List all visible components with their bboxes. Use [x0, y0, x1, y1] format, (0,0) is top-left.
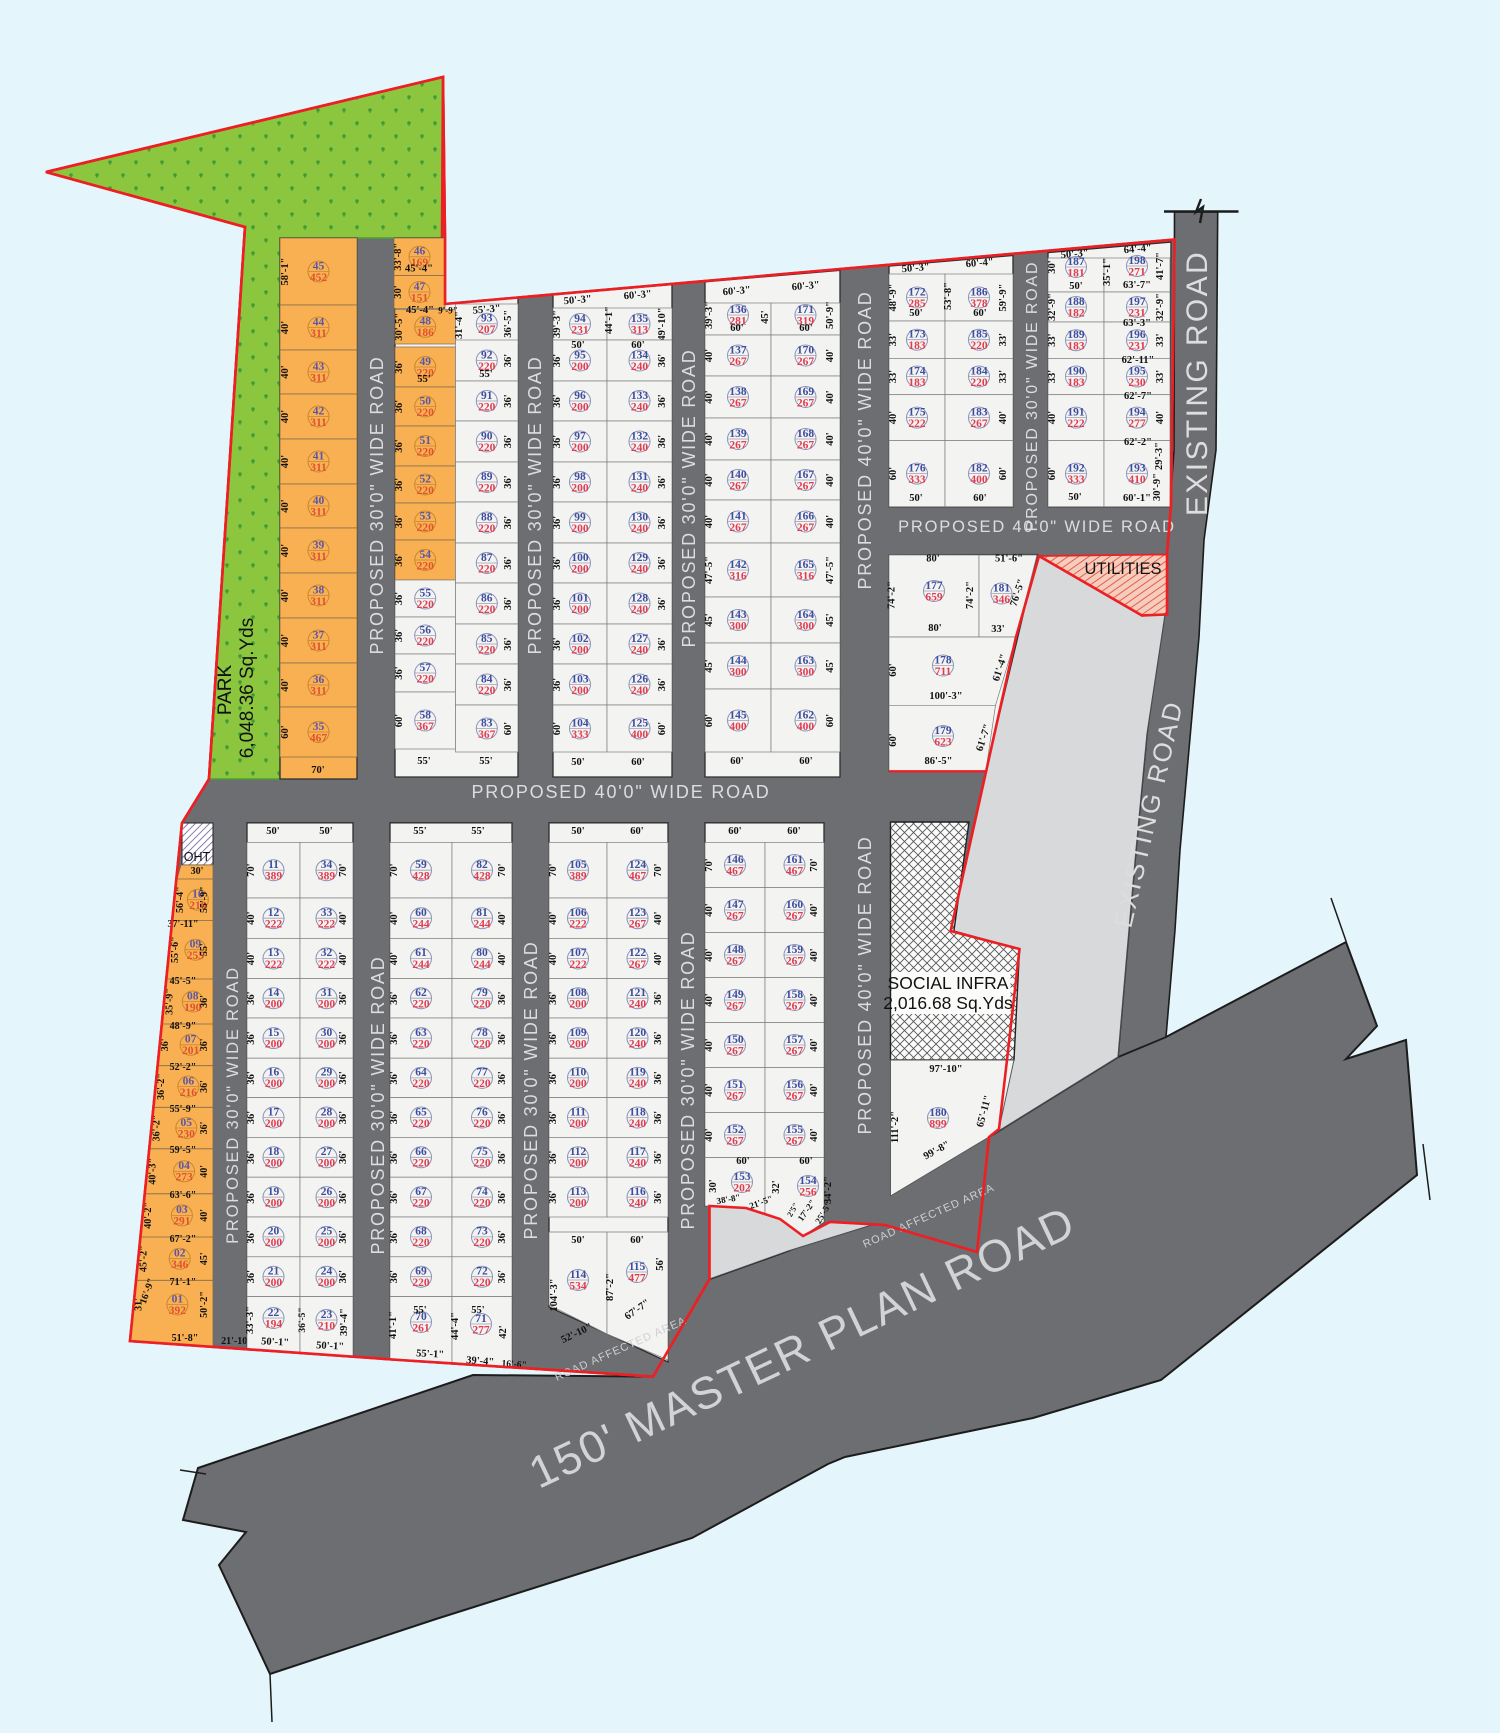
svg-text:220: 220	[478, 563, 496, 575]
svg-text:74'-2": 74'-2"	[965, 581, 976, 609]
svg-text:36': 36'	[497, 1270, 508, 1284]
svg-text:40': 40'	[280, 365, 291, 379]
svg-text:220: 220	[473, 1158, 491, 1170]
svg-text:200: 200	[265, 1038, 283, 1050]
svg-text:70': 70'	[311, 765, 325, 776]
svg-text:711: 711	[935, 666, 952, 678]
svg-text:36': 36'	[389, 1111, 400, 1125]
svg-text:36': 36'	[389, 1071, 400, 1085]
svg-text:240: 240	[631, 604, 649, 616]
svg-text:42: 42	[313, 405, 325, 417]
svg-text:96: 96	[574, 390, 586, 402]
svg-text:220: 220	[478, 442, 496, 454]
svg-text:200: 200	[265, 1237, 283, 1249]
svg-text:36': 36'	[657, 556, 668, 570]
svg-text:56'-4": 56'-4"	[175, 886, 186, 913]
svg-text:60': 60'	[1047, 467, 1058, 481]
svg-text:165: 165	[797, 559, 815, 571]
svg-text:200: 200	[569, 1197, 587, 1209]
svg-text:116: 116	[629, 1186, 646, 1198]
svg-text:36': 36'	[548, 991, 559, 1005]
svg-text:267: 267	[726, 1090, 744, 1102]
svg-text:60': 60'	[799, 1156, 813, 1167]
svg-text:244: 244	[473, 919, 491, 931]
svg-text:267: 267	[729, 439, 747, 451]
svg-text:58'-1": 58'-1"	[280, 258, 291, 286]
svg-text:467: 467	[726, 865, 744, 877]
svg-text:36': 36'	[394, 478, 405, 492]
svg-text:220: 220	[478, 644, 496, 656]
svg-text:36': 36'	[394, 439, 405, 453]
svg-text:32'-9": 32'-9"	[1047, 293, 1058, 321]
svg-text:91: 91	[481, 390, 493, 402]
svg-text:106: 106	[569, 907, 587, 919]
svg-text:267: 267	[629, 919, 647, 931]
svg-text:47'-5": 47'-5"	[825, 556, 836, 584]
svg-text:36': 36'	[338, 1190, 349, 1204]
svg-text:44'-1": 44'-1"	[604, 306, 615, 334]
svg-text:40': 40'	[497, 911, 508, 925]
svg-text:50': 50'	[909, 493, 923, 504]
svg-text:52: 52	[419, 473, 431, 485]
svg-text:47'-5": 47'-5"	[704, 556, 715, 584]
svg-text:07: 07	[185, 1034, 197, 1046]
svg-text:50'-1": 50'-1"	[261, 1336, 290, 1348]
svg-text:36': 36'	[389, 1151, 400, 1165]
svg-text:63'-6": 63'-6"	[170, 1190, 197, 1201]
svg-text:367: 367	[478, 729, 496, 741]
svg-text:PROPOSED 30'0" WIDE ROAD: PROPOSED 30'0" WIDE ROAD	[521, 940, 541, 1239]
svg-text:45'-5": 45'-5"	[170, 976, 197, 987]
svg-text:71'-1": 71'-1"	[170, 1277, 197, 1288]
svg-text:198: 198	[1128, 255, 1146, 267]
svg-text:428: 428	[412, 871, 430, 883]
svg-text:200: 200	[571, 482, 589, 494]
svg-text:400: 400	[631, 729, 649, 741]
svg-text:33': 33'	[1047, 370, 1058, 384]
svg-text:OHT: OHT	[184, 850, 211, 864]
svg-text:67: 67	[415, 1186, 427, 1198]
svg-text:95: 95	[574, 349, 586, 361]
svg-text:PROPOSED 30'0" WIDE ROAD: PROPOSED 30'0" WIDE ROAD	[368, 955, 388, 1254]
svg-text:220: 220	[417, 673, 435, 685]
svg-text:45'-4": 45'-4"	[405, 264, 433, 275]
svg-text:256: 256	[799, 1186, 817, 1198]
svg-text:220: 220	[478, 482, 496, 494]
svg-text:126: 126	[631, 673, 649, 685]
svg-text:40': 40'	[704, 1083, 715, 1097]
svg-text:36': 36'	[552, 516, 563, 530]
svg-text:24: 24	[321, 1266, 333, 1278]
svg-text:200: 200	[265, 999, 283, 1011]
svg-text:400: 400	[970, 474, 988, 486]
svg-text:118: 118	[629, 1106, 646, 1118]
svg-text:174: 174	[908, 365, 926, 377]
svg-text:70': 70'	[389, 863, 400, 877]
svg-text:104'-3": 104'-3"	[549, 1278, 560, 1311]
svg-text:240: 240	[631, 563, 649, 575]
svg-text:157: 157	[786, 1034, 804, 1046]
svg-text:36': 36'	[160, 1038, 171, 1051]
svg-text:64: 64	[415, 1067, 427, 1079]
svg-text:36': 36'	[389, 1031, 400, 1045]
svg-text:55': 55'	[479, 369, 493, 380]
svg-text:36'-5": 36'-5"	[503, 310, 514, 338]
svg-text:40': 40'	[825, 432, 836, 446]
svg-text:200: 200	[571, 685, 589, 697]
svg-text:PROPOSED 40'0" WIDE ROAD: PROPOSED 40'0" WIDE ROAD	[855, 290, 875, 589]
svg-text:316: 316	[797, 570, 815, 582]
svg-text:60': 60'	[552, 722, 563, 736]
svg-text:154: 154	[799, 1175, 817, 1187]
svg-text:200: 200	[571, 604, 589, 616]
svg-text:74: 74	[476, 1186, 488, 1198]
svg-text:267: 267	[729, 356, 747, 368]
svg-text:36': 36'	[394, 553, 405, 567]
svg-text:33'-3": 33'-3"	[245, 1306, 256, 1334]
svg-text:141: 141	[729, 510, 747, 522]
svg-text:60': 60'	[280, 725, 291, 739]
svg-text:200: 200	[318, 1158, 336, 1170]
svg-text:267: 267	[726, 910, 744, 922]
svg-text:33': 33'	[998, 333, 1009, 347]
svg-text:26: 26	[321, 1186, 333, 1198]
svg-text:194: 194	[265, 1318, 283, 1330]
svg-text:40': 40'	[998, 411, 1009, 425]
svg-text:39: 39	[313, 539, 325, 551]
svg-text:16: 16	[268, 1067, 280, 1079]
svg-text:267: 267	[786, 1045, 804, 1057]
svg-text:36': 36'	[246, 1071, 257, 1085]
svg-text:188: 188	[1067, 296, 1085, 308]
svg-text:267: 267	[797, 522, 815, 534]
svg-text:45': 45'	[704, 613, 715, 627]
svg-text:59: 59	[415, 859, 427, 871]
svg-text:222: 222	[318, 919, 336, 931]
svg-text:60': 60'	[787, 826, 801, 837]
svg-text:267: 267	[729, 522, 747, 534]
svg-text:267: 267	[797, 439, 815, 451]
svg-text:40': 40'	[809, 1038, 820, 1052]
svg-text:220: 220	[473, 999, 491, 1011]
svg-text:158: 158	[786, 989, 804, 1001]
svg-text:36': 36'	[389, 1190, 400, 1204]
svg-text:60': 60'	[799, 756, 813, 767]
svg-text:40': 40'	[548, 911, 559, 925]
svg-text:60': 60'	[503, 722, 514, 736]
svg-text:267: 267	[797, 480, 815, 492]
svg-text:149: 149	[726, 989, 744, 1001]
svg-text:56': 56'	[655, 1257, 666, 1271]
svg-text:101: 101	[571, 592, 589, 604]
svg-text:33': 33'	[991, 624, 1005, 635]
svg-text:75: 75	[476, 1146, 488, 1158]
svg-text:161: 161	[786, 854, 804, 866]
svg-text:97'-10": 97'-10"	[929, 1064, 962, 1075]
svg-text:267: 267	[786, 1135, 804, 1147]
svg-text:40': 40'	[704, 1038, 715, 1052]
svg-text:177: 177	[925, 580, 943, 592]
svg-text:109: 109	[569, 1027, 587, 1039]
svg-text:191: 191	[1067, 406, 1085, 418]
svg-text:267: 267	[629, 959, 647, 971]
svg-text:60': 60'	[657, 722, 668, 736]
svg-text:183: 183	[908, 377, 926, 389]
svg-text:59'-9": 59'-9"	[998, 284, 1009, 312]
svg-text:36': 36'	[394, 515, 405, 529]
svg-text:220: 220	[473, 1237, 491, 1249]
svg-text:240: 240	[629, 1078, 647, 1090]
svg-text:267: 267	[797, 397, 815, 409]
svg-text:77: 77	[476, 1067, 488, 1079]
svg-text:40': 40'	[280, 678, 291, 692]
svg-text:03: 03	[176, 1204, 188, 1216]
svg-text:52'-2": 52'-2"	[170, 1062, 197, 1073]
svg-text:200: 200	[318, 999, 336, 1011]
svg-text:50: 50	[419, 395, 431, 407]
svg-text:267: 267	[726, 1045, 744, 1057]
svg-text:36': 36'	[497, 1190, 508, 1204]
svg-text:15: 15	[268, 1027, 280, 1039]
svg-text:124: 124	[629, 859, 647, 871]
svg-text:220: 220	[412, 1237, 430, 1249]
svg-text:220: 220	[417, 522, 435, 534]
svg-text:PROPOSED 30'0" WIDE ROAD: PROPOSED 30'0" WIDE ROAD	[367, 355, 387, 654]
svg-text:273: 273	[175, 1172, 193, 1184]
svg-text:240: 240	[629, 1158, 647, 1170]
svg-text:534: 534	[569, 1280, 587, 1292]
svg-text:113: 113	[570, 1186, 587, 1198]
svg-text:36': 36'	[657, 354, 668, 368]
svg-text:230: 230	[178, 1128, 196, 1140]
svg-text:19: 19	[268, 1186, 280, 1198]
svg-text:33'-8": 33'-8"	[393, 243, 404, 271]
svg-text:14: 14	[268, 987, 280, 999]
svg-text:60': 60'	[998, 467, 1009, 481]
svg-text:300: 300	[797, 666, 815, 678]
svg-text:45': 45'	[760, 310, 771, 324]
svg-text:40': 40'	[246, 952, 257, 966]
svg-text:168: 168	[797, 428, 815, 440]
svg-text:29: 29	[321, 1067, 333, 1079]
svg-text:12: 12	[268, 907, 280, 919]
svg-text:240: 240	[631, 361, 649, 373]
svg-text:180: 180	[929, 1107, 947, 1119]
svg-text:131: 131	[631, 471, 649, 483]
svg-text:267: 267	[797, 356, 815, 368]
svg-text:60': 60'	[888, 663, 899, 677]
svg-text:37: 37	[313, 629, 325, 641]
svg-text:170: 170	[797, 344, 815, 356]
svg-text:36': 36'	[653, 1111, 664, 1125]
svg-text:40': 40'	[280, 410, 291, 424]
svg-text:60': 60'	[888, 467, 899, 481]
svg-text:151: 151	[411, 292, 429, 304]
svg-text:193: 193	[1128, 462, 1146, 474]
svg-text:181: 181	[1067, 267, 1085, 279]
svg-text:04: 04	[178, 1160, 190, 1172]
svg-text:36': 36'	[503, 556, 514, 570]
svg-text:240: 240	[631, 442, 649, 454]
svg-text:167: 167	[797, 469, 815, 481]
svg-text:39'-3": 39'-3"	[704, 301, 715, 329]
svg-text:220: 220	[970, 377, 988, 389]
svg-text:220: 220	[478, 401, 496, 413]
svg-text:164: 164	[797, 609, 815, 621]
svg-text:36': 36'	[552, 394, 563, 408]
svg-text:60': 60'	[888, 733, 899, 747]
svg-text:PROPOSED 30'0" WIDE ROAD: PROPOSED 30'0" WIDE ROAD	[678, 930, 698, 1229]
svg-text:36': 36'	[338, 1151, 349, 1165]
svg-text:89: 89	[481, 471, 493, 483]
svg-text:50': 50'	[571, 1235, 585, 1246]
svg-text:50': 50'	[571, 757, 585, 768]
svg-text:467: 467	[786, 865, 804, 877]
svg-text:36': 36'	[503, 354, 514, 368]
svg-text:108: 108	[569, 987, 587, 999]
svg-text:36': 36'	[552, 678, 563, 692]
svg-text:79: 79	[476, 987, 488, 999]
svg-text:277: 277	[1128, 418, 1146, 430]
svg-text:59'-5": 59'-5"	[170, 1145, 197, 1156]
svg-text:36': 36'	[246, 1190, 257, 1204]
svg-text:33': 33'	[1155, 370, 1166, 384]
svg-text:389: 389	[318, 871, 336, 883]
svg-text:210: 210	[318, 1320, 336, 1332]
svg-text:130: 130	[631, 511, 649, 523]
svg-text:PROPOSED 30'0" WIDE ROAD: PROPOSED 30'0" WIDE ROAD	[1024, 261, 1041, 532]
svg-text:36': 36'	[653, 991, 664, 1005]
svg-text:40': 40'	[199, 1165, 210, 1178]
svg-text:189: 189	[1067, 329, 1085, 341]
svg-text:36': 36'	[497, 1031, 508, 1045]
svg-text:54: 54	[419, 549, 431, 561]
svg-text:36': 36'	[657, 678, 668, 692]
svg-text:42': 42'	[498, 1325, 509, 1339]
svg-text:40': 40'	[825, 349, 836, 363]
svg-text:53'-8": 53'-8"	[943, 282, 954, 310]
svg-text:222: 222	[318, 959, 336, 971]
svg-text:200: 200	[569, 1078, 587, 1090]
svg-text:87'-2": 87'-2"	[605, 1273, 616, 1301]
svg-text:240: 240	[631, 685, 649, 697]
svg-text:220: 220	[417, 636, 435, 648]
svg-text:120: 120	[629, 1027, 647, 1039]
svg-text:125: 125	[631, 717, 649, 729]
svg-text:30': 30'	[393, 285, 404, 299]
svg-text:220: 220	[473, 1038, 491, 1050]
svg-text:41'-1": 41'-1"	[388, 1311, 399, 1339]
svg-text:195: 195	[1128, 365, 1146, 377]
svg-text:267: 267	[786, 1090, 804, 1102]
svg-text:36': 36'	[503, 516, 514, 530]
svg-text:200: 200	[318, 1197, 336, 1209]
svg-text:55': 55'	[199, 943, 210, 956]
svg-text:55'-9": 55'-9"	[199, 886, 210, 913]
svg-text:40': 40'	[653, 952, 664, 966]
svg-text:36': 36'	[552, 435, 563, 449]
svg-text:80': 80'	[928, 623, 942, 634]
svg-text:36': 36'	[394, 360, 405, 374]
svg-text:899: 899	[929, 1118, 947, 1130]
svg-text:40': 40'	[246, 911, 257, 925]
svg-text:36: 36	[313, 674, 325, 686]
svg-text:410: 410	[1128, 474, 1146, 486]
svg-text:186: 186	[970, 286, 988, 298]
svg-text:40': 40'	[809, 948, 820, 962]
svg-text:36': 36'	[503, 475, 514, 489]
svg-text:36': 36'	[653, 1151, 664, 1165]
svg-text:36': 36'	[389, 1270, 400, 1284]
svg-text:45'-4": 45'-4"	[406, 305, 434, 316]
svg-text:144: 144	[729, 655, 747, 667]
svg-text:36': 36'	[552, 637, 563, 651]
svg-text:220: 220	[412, 1158, 430, 1170]
svg-text:128: 128	[631, 592, 649, 604]
svg-text:143: 143	[729, 609, 747, 621]
svg-text:17: 17	[268, 1106, 280, 1118]
svg-text:36': 36'	[394, 592, 405, 606]
svg-text:389: 389	[569, 871, 587, 883]
svg-text:40': 40'	[1047, 411, 1058, 425]
svg-text:102: 102	[571, 633, 589, 645]
svg-text:200: 200	[318, 1237, 336, 1249]
svg-text:60: 60	[415, 907, 427, 919]
svg-text:56: 56	[419, 624, 431, 636]
svg-text:148: 148	[726, 944, 744, 956]
svg-text:183: 183	[1067, 377, 1085, 389]
svg-text:67'-2": 67'-2"	[170, 1234, 197, 1245]
svg-text:55: 55	[419, 587, 431, 599]
svg-text:36': 36'	[657, 475, 668, 489]
svg-text:40': 40'	[888, 411, 899, 425]
svg-text:220: 220	[412, 1038, 430, 1050]
svg-text:36': 36'	[497, 1111, 508, 1125]
svg-text:194: 194	[1128, 406, 1146, 418]
svg-text:48: 48	[419, 316, 431, 328]
svg-text:40': 40'	[809, 903, 820, 917]
svg-text:121: 121	[629, 987, 647, 999]
svg-text:169: 169	[797, 386, 815, 398]
svg-text:105: 105	[569, 859, 587, 871]
svg-text:111'-2": 111'-2"	[890, 1111, 901, 1143]
svg-text:36': 36'	[389, 1230, 400, 1244]
svg-text:389: 389	[265, 871, 283, 883]
svg-text:200: 200	[318, 1118, 336, 1130]
svg-text:60': 60'	[394, 714, 405, 728]
svg-text:222: 222	[569, 919, 587, 931]
svg-text:87: 87	[481, 552, 493, 564]
svg-text:112: 112	[570, 1146, 587, 1158]
svg-text:400: 400	[797, 721, 815, 733]
svg-text:103: 103	[571, 673, 589, 685]
svg-text:220: 220	[412, 1118, 430, 1130]
svg-text:40': 40'	[809, 993, 820, 1007]
svg-text:311: 311	[310, 462, 327, 474]
svg-text:428: 428	[473, 871, 491, 883]
svg-text:36': 36'	[199, 995, 210, 1008]
svg-text:63'-7": 63'-7"	[1123, 280, 1151, 291]
svg-text:SOCIAL INFRA: SOCIAL INFRA	[888, 973, 1009, 993]
svg-text:477: 477	[628, 1272, 646, 1284]
svg-text:267: 267	[726, 1135, 744, 1147]
svg-text:39'-4": 39'-4"	[339, 1308, 350, 1336]
svg-text:183: 183	[1067, 341, 1085, 353]
svg-text:83: 83	[481, 717, 493, 729]
svg-text:240: 240	[631, 644, 649, 656]
svg-text:70': 70'	[497, 863, 508, 877]
svg-text:136: 136	[729, 304, 747, 316]
